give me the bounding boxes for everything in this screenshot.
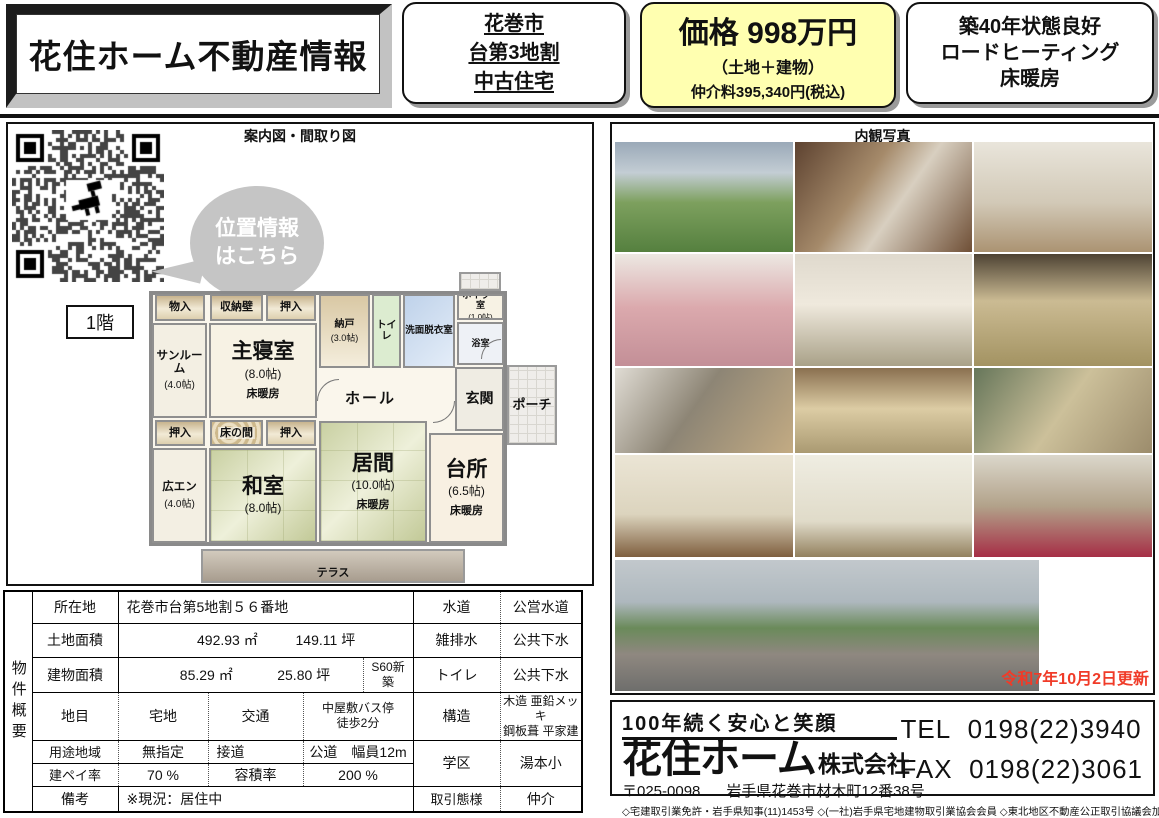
row-label: 建物面積 <box>32 657 118 692</box>
room-closet: 押入 <box>266 294 316 321</box>
building-area-value: 85.29 ㎡ 25.80 坪 <box>118 657 363 692</box>
company-tel: TEL 0198(22)3940 <box>900 716 1143 742</box>
brokerage-fee: 仲介料395,340円(税込) <box>691 81 845 102</box>
price-value: 価格 998万円 <box>679 8 857 52</box>
photo-tatami-room <box>974 254 1152 366</box>
room-tokonoma: 床の間 <box>210 420 263 446</box>
transport-value: 中屋敷バス停徒歩2分 <box>303 692 413 740</box>
location-box: 花巻市 台第3地割 中古住宅 <box>402 2 626 104</box>
table-section-label: 物件概要 <box>4 591 32 812</box>
room-washroom: 洗面脱衣室 <box>403 294 455 368</box>
drain-value: 公共下水 <box>500 623 582 657</box>
company-suffix: 株式会社 <box>818 745 910 779</box>
photo-panel: 内観写真 令和7年10月2日更新 <box>610 122 1155 695</box>
room-boiler: ボイラー室 (1.0帖) <box>457 294 504 320</box>
room-terrace: テラス <box>201 549 465 583</box>
water-value: 公営水道 <box>500 591 582 623</box>
feature-line: 床暖房 <box>1000 66 1060 92</box>
header-divider <box>0 114 1159 118</box>
row-label: 構造 <box>413 692 500 740</box>
row-label: 接道 <box>208 740 303 763</box>
company-box: 100年続く安心と笑顔 花住ホーム 株式会社 〒025-0098 岩手県花巻市材… <box>610 700 1155 796</box>
room-porch: ポーチ <box>507 365 557 445</box>
company-licenses: ◇宅建取引業免許・岩手県知事(11)1453号 ◇(一社)岩手県宅地建物取引業協… <box>622 803 1145 818</box>
room-closet: 押入 <box>155 420 205 446</box>
row-label: 雑排水 <box>413 623 500 657</box>
photo-exterior-street-view <box>615 560 1039 691</box>
flyer-title: 花住ホーム不動産情報 <box>16 14 380 94</box>
feature-box: 築40年状態良好 ロードヒーティング 床暖房 <box>906 2 1154 104</box>
photo-kitchen <box>615 368 793 453</box>
company-address: 岩手県花巻市材木町12番38号 <box>726 780 924 801</box>
photo-exterior-garden <box>615 142 793 252</box>
location-line: 中古住宅 <box>474 68 554 97</box>
flyer-title-box: 花住ホーム不動産情報 <box>6 4 392 108</box>
road-value: 公道 幅員12m <box>303 740 413 763</box>
photo-entry-hall <box>795 142 973 252</box>
notes-value: ※現況：居住中 <box>118 786 413 812</box>
room-back-step <box>459 272 501 291</box>
photo-sunroom-curtains <box>615 455 793 557</box>
photo-toilet <box>795 254 973 366</box>
qr-code <box>12 130 164 282</box>
room-storage: 物入 <box>155 294 205 321</box>
row-label: 水道 <box>413 591 500 623</box>
location-value: 花巻市台第5地割５６番地 <box>118 591 413 623</box>
toilet-value: 公共下水 <box>500 657 582 692</box>
company-slogan: 100年続く安心と笑顔 <box>622 707 897 740</box>
land-area-value: 492.93 ㎡ 149.11 坪 <box>118 623 413 657</box>
school-value: 湯本小 <box>500 740 582 786</box>
location-line: 台第3地割 <box>468 39 559 68</box>
row-label: 土地面積 <box>32 623 118 657</box>
room-master-bedroom: 主寝室 (8.0帖) 床暖房 <box>209 323 317 418</box>
room-living: 居間 (10.0帖) 床暖房 <box>319 421 427 543</box>
row-label: 容積率 <box>208 763 303 786</box>
company-fax: FAX 0198(22)3061 <box>900 756 1143 782</box>
room-entrance: 玄関 <box>455 367 504 431</box>
floorplan: 物入 収納壁 押入 納戸 (3.0帖) トイレ 洗面脱衣室 ボイラー室 (1.0… <box>149 291 563 587</box>
photo-tatami-green-wall <box>974 368 1152 453</box>
room-kitchen: 台所 (6.5帖) 床暖房 <box>429 433 504 543</box>
photo-lace-curtain-room <box>795 455 973 557</box>
price-box: 価格 998万円 （土地＋建物） 仲介料395,340円(税込) <box>640 2 896 108</box>
row-label: トイレ <box>413 657 500 692</box>
room-toilet: トイレ <box>372 294 401 368</box>
deal-value: 仲介 <box>500 786 582 812</box>
row-label: 取引態様 <box>413 786 500 812</box>
zoning-value: 無指定 <box>118 740 208 763</box>
update-date: 令和7年10月2日更新 <box>1001 665 1149 689</box>
built-year: S60新築 <box>363 657 413 692</box>
photo-grid <box>615 142 1152 557</box>
far-value: 200 % <box>303 763 413 786</box>
photo-bedroom-red-carpet <box>974 455 1152 557</box>
floor-label: 1階 <box>66 305 134 339</box>
room-hiroen: 広エン (4.0帖) <box>152 448 207 543</box>
map-floorplan-panel: 案内図・間取り図 位置情報 はこちら 1階 物入 収納壁 押入 納戸 (3.0帖… <box>6 122 594 586</box>
room-hall-label: ホール <box>345 387 396 408</box>
room-closet: 押入 <box>266 420 316 446</box>
room-storage-wall: 収納壁 <box>210 294 263 321</box>
company-postal: 〒025-0098 <box>622 780 700 801</box>
row-label: 交通 <box>208 692 303 740</box>
company-logo: 花住ホーム <box>622 738 816 780</box>
room-sunroom: サンルーム (4.0帖) <box>152 323 207 418</box>
row-label: 所在地 <box>32 591 118 623</box>
location-line: 花巻市 <box>484 10 544 39</box>
location-speech-bubble: 位置情報 はこちら <box>190 186 324 300</box>
structure-value: 木造 亜鉛メッキ鋼板葺 平家建 <box>500 692 582 740</box>
feature-line: ロードヒーティング <box>941 40 1120 66</box>
row-label: 用途地域 <box>32 740 118 763</box>
row-label: 建ペイ率 <box>32 763 118 786</box>
bcr-value: 70 % <box>118 763 208 786</box>
price-includes: （土地＋建物） <box>712 54 824 78</box>
feature-line: 築40年状態良好 <box>959 14 1101 40</box>
row-label: 学区 <box>413 740 500 786</box>
row-label: 地目 <box>32 692 118 740</box>
landcat-value: 宅地 <box>118 692 208 740</box>
property-spec-table: 物件概要 所在地 花巻市台第5地割５６番地 水道 公営水道 土地面積 492.9… <box>3 590 583 813</box>
photo-bathroom-pink-tub <box>615 254 793 366</box>
photo-living-tatami <box>795 368 973 453</box>
row-label: 備考 <box>32 786 118 812</box>
room-nando: 納戸 (3.0帖) <box>319 294 370 368</box>
room-washitsu: 和室 (8.0帖) <box>209 448 317 543</box>
photo-washroom <box>974 142 1152 252</box>
